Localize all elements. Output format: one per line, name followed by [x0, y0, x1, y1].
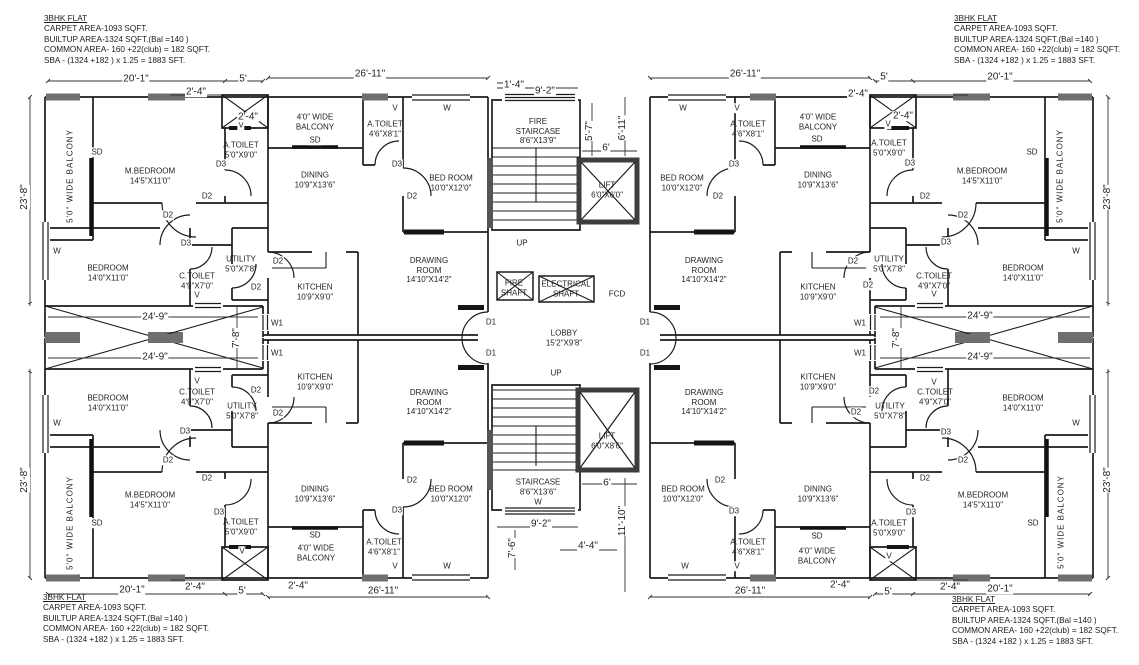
room-label-a-toilet: A.TOILET4'6"X8'1" [367, 120, 402, 139]
door-tag-d2: D2 [919, 473, 931, 483]
flat-info-block: 3BHK FLAT CARPET AREA-1093 SQFT. BUILTUP… [954, 14, 1120, 66]
room-size: 10'9"X9'0" [800, 382, 836, 392]
door-tag-d2: D2 [162, 455, 174, 465]
vent-tag-v: V [884, 119, 891, 129]
room-name: 4'0" WIDE [297, 544, 335, 554]
flat-info-block: 3BHK FLAT CARPET AREA-1093 SQFT. BUILTUP… [43, 593, 209, 645]
room-label-bedroom: BEDROOM14'0"X11'0" [1002, 394, 1043, 413]
room-label-a-toilet: A.TOILET5'0"X9'0" [223, 141, 258, 160]
room-name: C.TOILET [917, 388, 953, 398]
room-name: BED ROOM [661, 485, 705, 495]
common-area-line: COMMON AREA- 160 +22(club) = 182 SQFT. [952, 626, 1118, 636]
room-size: 8'6"X13'9" [516, 136, 561, 146]
room-name: M.BEDROOM [125, 491, 175, 501]
room-size: 6'0"X8'6" [591, 441, 623, 451]
room-label-dining: DINING10'9"X13'6" [798, 171, 839, 190]
door-tag-d2: D2 [250, 282, 262, 292]
dim-label: 9'-2" [530, 519, 552, 529]
window-tag-w: W [680, 561, 690, 571]
floor-plan: 3BHK FLAT CARPET AREA-1093 SQFT. BUILTUP… [0, 0, 1139, 665]
room-name: C.TOILET [916, 272, 952, 282]
dim-label: 5' [879, 72, 888, 82]
room-name: BEDROOM [87, 264, 128, 274]
room-label-c-toilet: C.TOILET4'9"X7'0" [916, 272, 952, 291]
room-label-dining: DINING10'9"X13'6" [295, 485, 336, 504]
door-tag-d2: D2 [201, 191, 213, 201]
room-size: 4'6"X8'1" [730, 547, 765, 557]
room-label-m-bedroom: M.BEDROOM14'5"X11'0" [958, 491, 1008, 510]
dim-label: 2'-4" [892, 111, 914, 121]
dim-label: 2'-4" [287, 581, 309, 591]
dim-label: 26'-11" [734, 586, 766, 596]
room-label-bed-room: BED ROOM10'0"X12'0" [660, 174, 704, 193]
dim-label: 2'-4" [847, 89, 869, 99]
room-name: DINING [798, 485, 839, 495]
door-tag-d3: D3 [905, 507, 917, 517]
up-label: UP [515, 238, 528, 248]
room-label-fire-staircase: FIRESTAIRCASE8'6"X13'9" [516, 117, 561, 146]
room-label-c-toilet: C.TOILET4'9"X7'0" [179, 388, 215, 407]
sba-line: SBA - (1324 +182 ) x 1.25 = 1883 SFT. [44, 56, 210, 66]
dim-label: 2'-4" [939, 582, 961, 592]
door-tag-d3: D3 [728, 506, 740, 516]
dim-label: 24'-9" [141, 312, 168, 322]
dim-label: 6' [601, 143, 610, 153]
room-name: DRAWING [681, 256, 726, 266]
room-label-drawing-room: DRAWINGROOM14'10"X14'2" [681, 256, 726, 285]
door-tag-d2: D2 [862, 280, 874, 290]
door-tag-d2: D2 [714, 475, 726, 485]
dim-label: 23'-8" [1103, 184, 1113, 209]
door-tag-d3: D3 [180, 238, 192, 248]
room-size: 5'0"X9'0" [223, 150, 258, 160]
room-name: KITCHEN [297, 373, 333, 383]
room-size: 5'0"X9'0" [871, 528, 906, 538]
room-size: 10'0"X12'0" [429, 494, 473, 504]
sba-line: SBA - (1324 +182 ) x 1.25 = 1883 SFT. [43, 635, 209, 645]
room-label-electrical-shaft: ELECTRICALSHAFT [541, 280, 590, 299]
door-tag-d3: D3 [940, 237, 952, 247]
door-tag-d3: D3 [213, 507, 225, 517]
room-label-utility: UTILITY5'0"X7'8" [873, 255, 905, 274]
room-name: BALCONY [798, 556, 836, 566]
dim-label: 20'-1" [986, 584, 1013, 594]
room-size: 5'0"X9'0" [223, 527, 258, 537]
window-tag-sd: SD [90, 147, 103, 157]
flat-quadrant-mirror-diag [648, 307, 1110, 599]
dim-label: 2'-4" [237, 112, 259, 122]
room-name: A.TOILET [730, 120, 765, 130]
room-size: 10'9"X13'6" [798, 180, 839, 190]
builtup-area-line: BUILTUP AREA-1324 SQFT.(Bal =140 ) [952, 616, 1118, 626]
room-label-side-balcony: 5'0" WIDE BALCONY [1056, 129, 1065, 223]
door-tag-d3: D3 [391, 505, 403, 515]
room-label-a-toilet: A.TOILET4'6"X8'1" [366, 538, 401, 557]
dim-label: 4'-4" [577, 541, 599, 551]
door-tag-d2: D2 [201, 473, 213, 483]
room-name: FIRE [501, 279, 527, 289]
room-name: DINING [798, 171, 839, 181]
room-name: 4'0" WIDE [296, 113, 334, 123]
window-tag-sd: SD [308, 135, 321, 145]
dim-label: 23'-8" [1103, 467, 1113, 492]
builtup-area-line: BUILTUP AREA-1324 SQFT.(Bal =140 ) [44, 35, 210, 45]
room-name: STAIRCASE [516, 126, 561, 136]
room-size: 14'0"X11'0" [87, 273, 128, 283]
room-label-kitchen: KITCHEN10'9"X9'0" [800, 373, 836, 392]
carpet-area-line: CARPET AREA-1093 SQFT. [44, 24, 210, 34]
door-tag-d1: D1 [485, 348, 497, 358]
room-name: ROOM [681, 397, 726, 407]
common-area-line: COMMON AREA- 160 +22(club) = 182 SQFT. [44, 45, 210, 55]
room-name: A.TOILET [730, 538, 765, 548]
room-name: 4'0" WIDE [798, 547, 836, 557]
window-tag-w: W [52, 418, 62, 428]
dim-label: 26'-11" [354, 69, 386, 79]
room-name: BED ROOM [429, 485, 473, 495]
vent-tag-v: V [193, 290, 200, 300]
room-name: 4'0" WIDE [799, 113, 837, 123]
sba-line: SBA - (1324 +182 ) x 1.25 = 1883 SFT. [954, 56, 1120, 66]
room-name: A.TOILET [223, 141, 258, 151]
flat-type-title: 3BHK FLAT [954, 14, 1120, 24]
room-size: 4'6"X8'1" [366, 547, 401, 557]
window-tag-w: W [1071, 418, 1081, 428]
vent-tag-v: V [391, 103, 398, 113]
room-name: KITCHEN [297, 283, 333, 293]
window-tag-sd: SD [90, 518, 103, 528]
door-tag-d1: D1 [639, 317, 651, 327]
door-tag-d2: D2 [868, 386, 880, 396]
vent-tag-v: V [391, 561, 398, 571]
room-label-bed-room: BED ROOM10'0"X12'0" [429, 174, 473, 193]
room-name: UTILITY [225, 255, 257, 265]
flat-type-title: 3BHK FLAT [44, 14, 210, 24]
door-tag-d3: D3 [215, 159, 227, 169]
room-name: A.TOILET [871, 519, 906, 529]
room-size: 5'0"X7'8" [874, 411, 906, 421]
vent-tag-v: V [733, 103, 740, 113]
room-size: 14'5"X11'0" [125, 500, 175, 510]
room-label-bedroom: BEDROOM14'0"X11'0" [87, 264, 128, 283]
room-label-lobby: LOBBY15'2"X9'8" [546, 329, 582, 348]
room-name: A.TOILET [871, 139, 906, 149]
room-name: M.BEDROOM [958, 491, 1008, 501]
dim-label: 2'-4" [184, 582, 206, 592]
room-label-kitchen: KITCHEN10'9"X9'0" [800, 283, 836, 302]
vent-tag-v: V [193, 376, 200, 386]
room-name: UTILITY [873, 255, 905, 265]
room-size: 6'0"X6'0" [591, 190, 623, 200]
dim-label: 26'-11" [367, 586, 399, 596]
door-tag-d2: D2 [919, 191, 931, 201]
door-tag-d2: D2 [272, 408, 284, 418]
room-size: 5'0"X7'8" [225, 264, 257, 274]
room-size: 10'9"X13'6" [295, 494, 336, 504]
dim-label: 7'-8" [232, 328, 242, 348]
room-name: BEDROOM [87, 394, 128, 404]
room-name: A.TOILET [366, 538, 401, 548]
room-label-lift: LIFT6'0"X6'0" [591, 181, 623, 200]
window-tag-w: W [52, 246, 62, 256]
window-tag-w1: W1 [853, 318, 867, 328]
room-label-fire-shaft: FIRESHAFT [501, 279, 527, 298]
vent-tag-v: V [930, 289, 937, 299]
room-name: C.TOILET [179, 272, 215, 282]
window-tag-w1: W1 [270, 348, 284, 358]
room-label-front-balcony: 4'0" WIDEBALCONY [798, 547, 836, 566]
room-size: 4'9"X7'0" [179, 397, 215, 407]
room-size: 14'5"X11'0" [125, 176, 175, 186]
room-label-utility: UTILITY5'0"X7'8" [225, 255, 257, 274]
room-name: ROOM [406, 265, 451, 275]
room-name: BED ROOM [429, 174, 473, 184]
carpet-area-line: CARPET AREA-1093 SQFT. [954, 24, 1120, 34]
dim-label: 20'-1" [122, 74, 149, 84]
room-label-drawing-room: DRAWINGROOM14'10"X14'2" [406, 256, 451, 285]
room-label-bedroom: BEDROOM14'0"X11'0" [87, 394, 128, 413]
room-name: LIFT [591, 181, 623, 191]
flat-type-title: 3BHK FLAT [952, 595, 1118, 605]
common-area-line: COMMON AREA- 160 +22(club) = 182 SQFT. [43, 624, 209, 634]
flat-info-block: 3BHK FLAT CARPET AREA-1093 SQFT. BUILTUP… [44, 14, 210, 66]
room-size: 14'10"X14'2" [406, 275, 451, 285]
door-tag-d3: D3 [179, 426, 191, 436]
room-size: 5'0"X9'0" [871, 148, 906, 158]
dim-label: 5'-7" [585, 121, 595, 141]
dim-label: 23'-8" [20, 467, 30, 492]
door-tag-d2: D2 [250, 385, 262, 395]
dim-label: 11'-10" [618, 506, 628, 536]
room-label-side-balcony: 5'0" WIDE BALCONY [66, 476, 75, 570]
room-name: C.TOILET [179, 388, 215, 398]
room-label-a-toilet: A.TOILET5'0"X9'0" [223, 518, 258, 537]
dim-label: 5' [237, 586, 246, 596]
room-size: 15'2"X9'8" [546, 338, 582, 348]
window-tag-sd: SD [810, 134, 823, 144]
room-name: LIFT [591, 432, 623, 442]
room-name: SHAFT [541, 289, 590, 299]
room-label-kitchen: KITCHEN10'9"X9'0" [297, 283, 333, 302]
room-name: DRAWING [681, 388, 726, 398]
sba-line: SBA - (1324 +182 ) x 1.25 = 1883 SFT. [952, 637, 1118, 647]
room-size: 14'10"X14'2" [681, 275, 726, 285]
door-tag-d1: D1 [485, 317, 497, 327]
door-tag-d2: D2 [712, 191, 724, 201]
room-size: 5'0"X7'8" [873, 264, 905, 274]
dim-label: 20'-1" [118, 585, 145, 595]
room-label-a-toilet: A.TOILET5'0"X9'0" [871, 519, 906, 538]
room-label-side-balcony: 5'0" WIDE BALCONY [1057, 475, 1066, 569]
room-size: 10'0"X12'0" [429, 183, 473, 193]
window-tag-w: W [442, 561, 452, 571]
builtup-area-line: BUILTUP AREA-1324 SQFT.(Bal =140 ) [954, 35, 1120, 45]
room-size: 14'0"X11'0" [87, 403, 128, 413]
room-name: UTILITY [226, 402, 258, 412]
room-label-bed-room: BED ROOM10'0"X12'0" [661, 485, 705, 504]
door-tag-d2: D2 [406, 475, 418, 485]
dim-label: 24'-9" [966, 311, 993, 321]
room-name: DRAWING [406, 388, 451, 398]
door-tag-d3: D3 [904, 158, 916, 168]
door-tag-d3: D3 [728, 159, 740, 169]
room-size: 14'10"X14'2" [406, 407, 451, 417]
door-tag-d3: D3 [940, 427, 952, 437]
dim-label: 1'-4" [503, 80, 525, 90]
room-name: KITCHEN [800, 283, 836, 293]
room-label-c-toilet: C.TOILET4'9"X7'0" [179, 272, 215, 291]
door-tag-d2: D2 [957, 210, 969, 220]
dim-label: 9'-2" [534, 86, 556, 96]
vent-tag-v: V [930, 377, 937, 387]
window-tag-w: W [678, 103, 688, 113]
room-label-lift: LIFT6'0"X8'6" [591, 432, 623, 451]
vent-tag-v: V [238, 546, 245, 556]
room-name: SHAFT [501, 288, 527, 298]
room-label-m-bedroom: M.BEDROOM14'5"X11'0" [125, 491, 175, 510]
dim-label: 7'-6" [508, 538, 518, 558]
room-size: 4'6"X8'1" [367, 129, 402, 139]
room-label-bed-room: BED ROOM10'0"X12'0" [429, 485, 473, 504]
room-size: 4'9"X7'0" [179, 281, 215, 291]
room-label-dining: DINING10'9"X13'6" [295, 171, 336, 190]
room-name: KITCHEN [800, 373, 836, 383]
room-label-m-bedroom: M.BEDROOM14'5"X11'0" [957, 167, 1007, 186]
room-size: 5'0"X7'8" [226, 411, 258, 421]
flat-quadrant-mirror-right [648, 76, 1110, 368]
room-label-utility: UTILITY5'0"X7'8" [874, 402, 906, 421]
room-size: 10'9"X13'6" [798, 494, 839, 504]
room-size: 10'0"X12'0" [661, 494, 705, 504]
room-name: DINING [295, 485, 336, 495]
room-size: 10'9"X9'0" [297, 292, 333, 302]
room-label-side-balcony: 5'0" WIDE BALCONY [66, 129, 75, 223]
room-name: M.BEDROOM [125, 167, 175, 177]
room-name: A.TOILET [223, 518, 258, 528]
room-name: BEDROOM [1002, 264, 1043, 274]
dim-label: 5' [238, 74, 247, 84]
flat-quadrant-mirror-bottom [28, 307, 490, 599]
room-label-utility: UTILITY5'0"X7'8" [226, 402, 258, 421]
room-size: 4'6"X8'1" [730, 129, 765, 139]
flat-info-block: 3BHK FLAT CARPET AREA-1093 SQFT. BUILTUP… [952, 595, 1118, 647]
room-label-front-balcony: 4'0" WIDEBALCONY [799, 113, 837, 132]
door-tag-d2: D2 [957, 455, 969, 465]
door-tag-d3: D3 [391, 159, 403, 169]
room-name: STAIRCASE [516, 478, 561, 488]
room-name: A.TOILET [367, 120, 402, 130]
room-label-dining: DINING10'9"X13'6" [798, 485, 839, 504]
room-name: LOBBY [546, 329, 582, 339]
room-label-front-balcony: 4'0" WIDEBALCONY [296, 113, 334, 132]
room-label-a-toilet: A.TOILET4'6"X8'1" [730, 538, 765, 557]
room-label-front-balcony: 4'0" WIDEBALCONY [297, 544, 335, 563]
window-tag-sd: SD [308, 530, 321, 540]
room-size: 10'9"X9'0" [800, 292, 836, 302]
window-tag-sd: SD [1026, 518, 1039, 528]
room-size: 14'5"X11'0" [957, 176, 1007, 186]
room-size: 10'9"X13'6" [295, 180, 336, 190]
room-name: UTILITY [874, 402, 906, 412]
room-name: BED ROOM [660, 174, 704, 184]
dim-label: 20'-1" [986, 72, 1013, 82]
carpet-area-line: CARPET AREA-1093 SQFT. [43, 603, 209, 613]
dim-label: 2'-4" [829, 580, 851, 590]
door-tag-d2: D2 [406, 191, 418, 201]
room-name: M.BEDROOM [957, 167, 1007, 177]
window-tag-sd: SD [1025, 147, 1038, 157]
room-name: ELECTRICAL [541, 280, 590, 290]
room-size: 10'0"X12'0" [660, 183, 704, 193]
door-tag-d2: D2 [272, 256, 284, 266]
window-tag-w: W [533, 497, 543, 507]
builtup-area-line: BUILTUP AREA-1324 SQFT.(Bal =140 ) [43, 614, 209, 624]
window-tag-w1: W1 [270, 318, 284, 328]
carpet-area-line: CARPET AREA-1093 SQFT. [952, 605, 1118, 615]
dim-label: 24'-9" [966, 352, 993, 362]
room-size: 14'5"X11'0" [958, 500, 1008, 510]
room-size: 14'0"X11'0" [1002, 403, 1043, 413]
room-size: 4'9"X7'0" [917, 397, 953, 407]
room-name: FIRE [516, 117, 561, 127]
dim-label: 23'-8" [20, 184, 30, 209]
room-label-drawing-room: DRAWINGROOM14'10"X14'2" [681, 388, 726, 417]
room-label-drawing-room: DRAWINGROOM14'10"X14'2" [406, 388, 451, 417]
room-label-bedroom: BEDROOM14'0"X11'0" [1002, 264, 1043, 283]
dim-label: 7'-8" [892, 328, 902, 348]
room-label-kitchen: KITCHEN10'9"X9'0" [297, 373, 333, 392]
room-label-staircase: STAIRCASE8'6"X13'6" [516, 478, 561, 497]
common-area-line: COMMON AREA- 160 +22(club) = 182 SQFT. [954, 45, 1120, 55]
room-name: BALCONY [799, 122, 837, 132]
window-tag-w: W [1071, 246, 1081, 256]
room-size: 14'0"X11'0" [1002, 273, 1043, 283]
dim-label: 6'-11" [618, 116, 628, 141]
dim-label: 24'-9" [141, 352, 168, 362]
up-label: UP [549, 368, 562, 378]
room-label-m-bedroom: M.BEDROOM14'5"X11'0" [125, 167, 175, 186]
room-name: ROOM [681, 265, 726, 275]
room-name: DRAWING [406, 256, 451, 266]
room-size: 14'10"X14'2" [681, 407, 726, 417]
vent-tag-v: V [733, 561, 740, 571]
door-tag-d2: D2 [850, 407, 862, 417]
window-tag-w: W [442, 103, 452, 113]
vent-tag-v: V [885, 551, 892, 561]
dim-label: 26'-11" [729, 69, 761, 79]
window-tag-sd: SD [810, 531, 823, 541]
dim-label: 5' [883, 587, 892, 597]
room-label-a-toilet: A.TOILET4'6"X8'1" [730, 120, 765, 139]
dim-label: 6' [602, 478, 611, 488]
door-tag-d1: D1 [639, 348, 651, 358]
fcd-label: FCD [608, 289, 626, 299]
dim-label: 2'-4" [185, 87, 207, 97]
room-label-a-toilet: A.TOILET5'0"X9'0" [871, 139, 906, 158]
room-size: 8'6"X13'6" [516, 487, 561, 497]
flat-quadrant-linework [28, 76, 490, 368]
room-label-c-toilet: C.TOILET4'9"X7'0" [917, 388, 953, 407]
door-tag-d2: D2 [847, 256, 859, 266]
window-tag-w1: W1 [853, 348, 867, 358]
room-name: BALCONY [297, 553, 335, 563]
room-name: BALCONY [296, 122, 334, 132]
room-size: 10'9"X9'0" [297, 382, 333, 392]
door-tag-d2: D2 [162, 210, 174, 220]
room-name: BEDROOM [1002, 394, 1043, 404]
room-name: ROOM [406, 397, 451, 407]
room-name: DINING [295, 171, 336, 181]
